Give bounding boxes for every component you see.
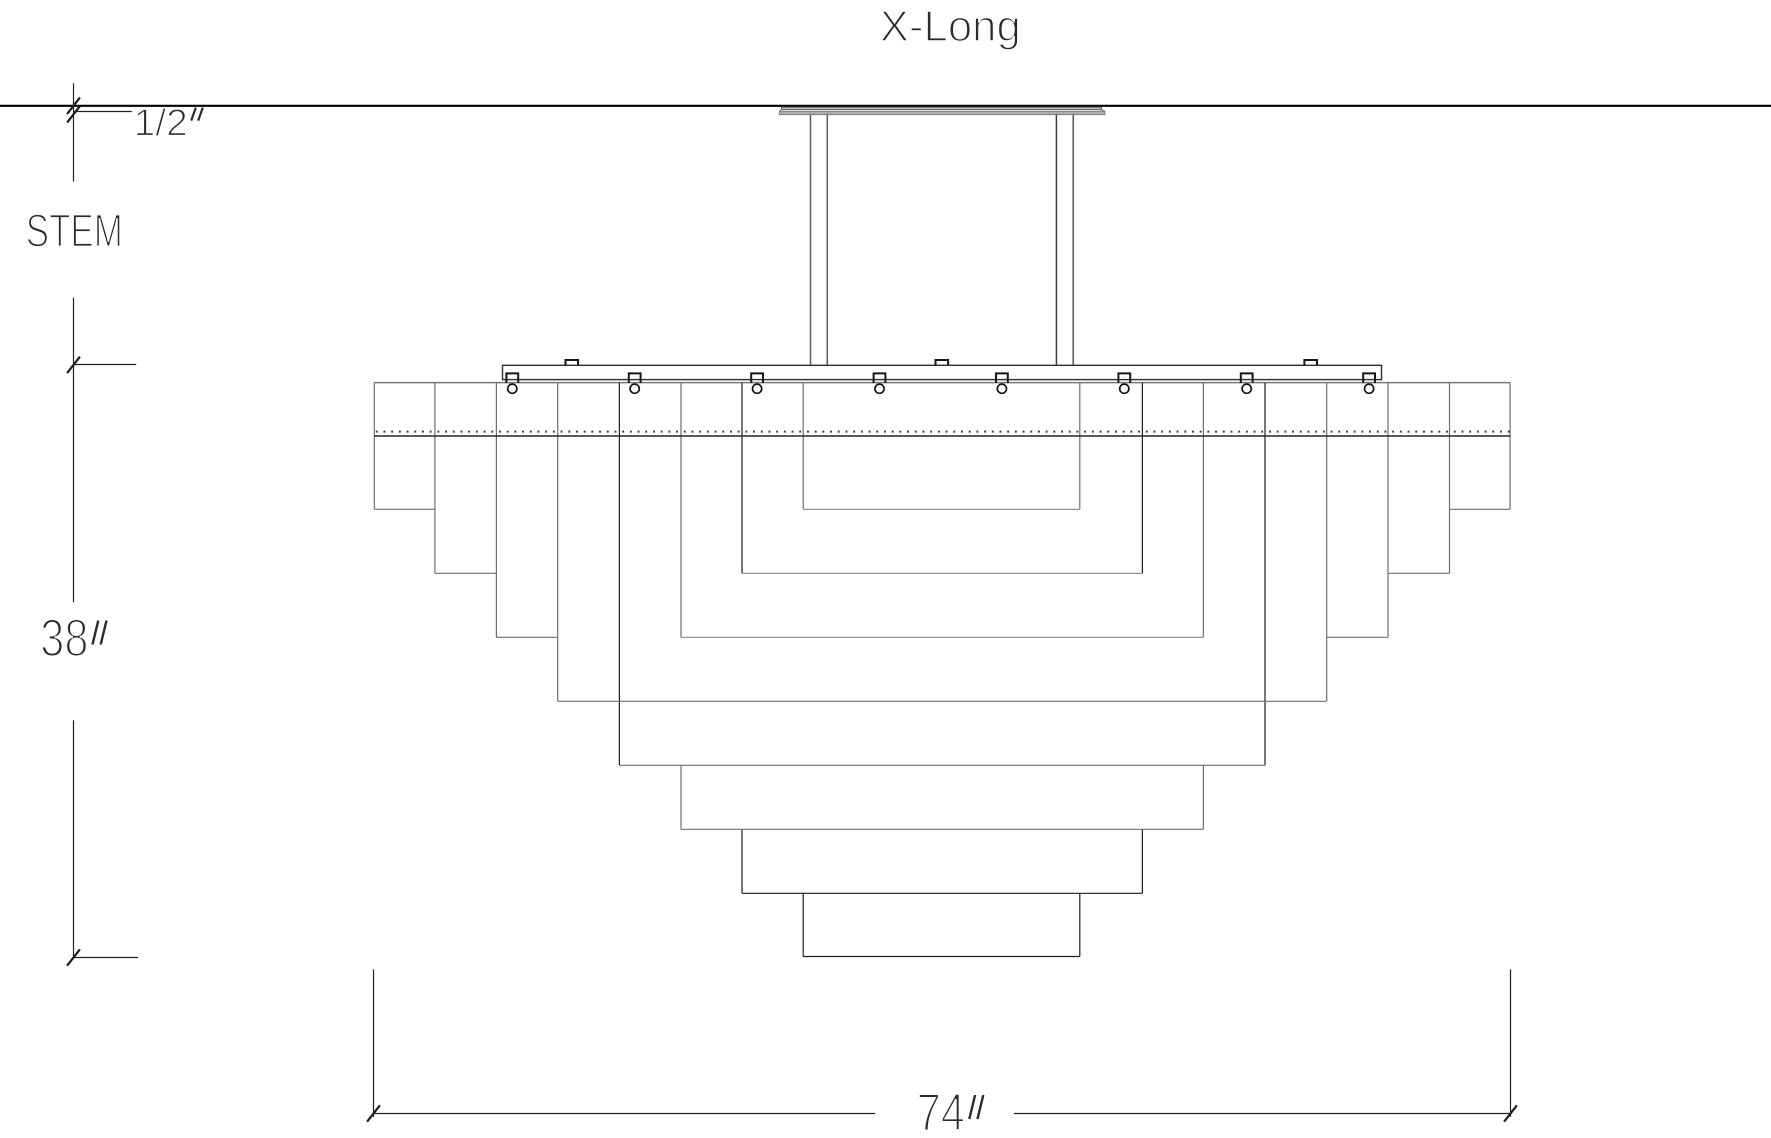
svg-text:STEM: STEM (26, 204, 123, 256)
svg-text:74: 74 (917, 1084, 965, 1138)
svg-text:X-Long: X-Long (880, 3, 1021, 51)
svg-text:1/2: 1/2 (134, 102, 188, 145)
svg-text:38: 38 (40, 609, 88, 668)
